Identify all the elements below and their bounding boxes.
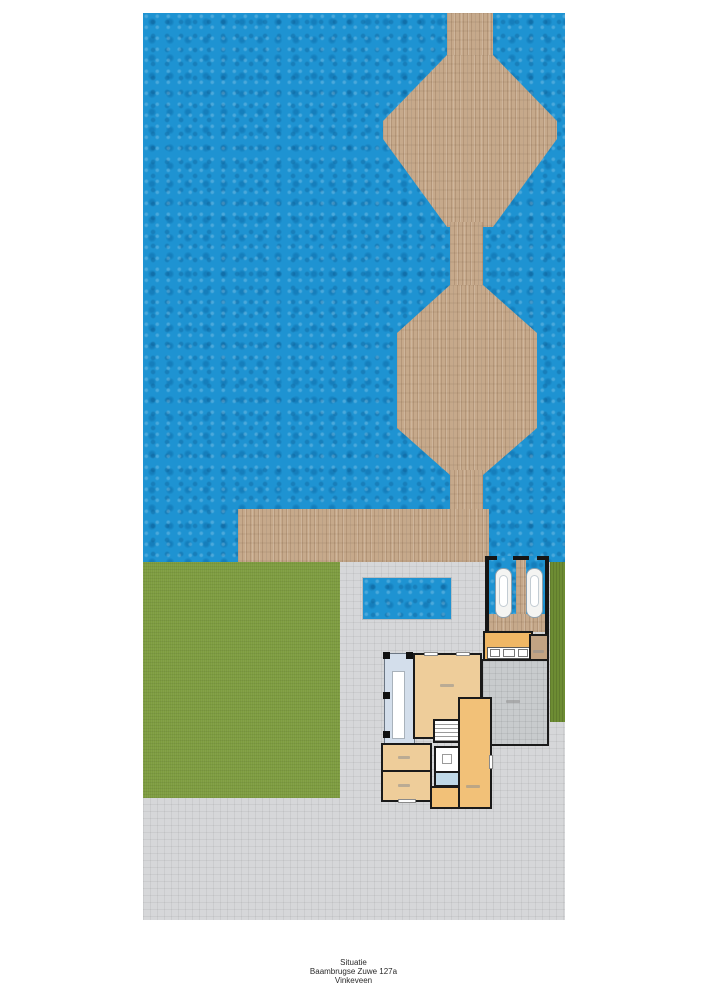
caption-line-3: Vinkeveen (0, 976, 707, 985)
kitchen-sink-3 (518, 649, 528, 657)
deck-walkway-top (447, 13, 493, 59)
kitchen-living-window (489, 755, 493, 769)
veranda-post-2 (406, 652, 413, 659)
site-plan-canvas: Situatie Baambrugse Zuwe 127a Vinkeveen (0, 0, 707, 1000)
room-label-smudge (440, 684, 454, 687)
veranda-post-3 (383, 692, 390, 699)
boat-left (495, 568, 512, 618)
caption-line-2: Baambrugse Zuwe 127a (0, 967, 707, 976)
bedroom-2-window (398, 799, 416, 803)
shore-deck-strip (238, 509, 489, 562)
kitchen-living-room (458, 697, 492, 809)
boat-right-deck (530, 575, 539, 607)
room-label-smudge (398, 784, 410, 787)
caption-line-1: Situatie (0, 958, 707, 967)
deck-walkway-upper (450, 222, 483, 290)
kitchen-living-room-extension (430, 786, 460, 809)
boathouse-wall-right (545, 556, 549, 642)
room-label-smudge (506, 700, 520, 703)
boathouse-wall-stub-1 (485, 556, 497, 560)
boat-right (526, 568, 543, 618)
caption: Situatie Baambrugse Zuwe 127a Vinkeveen (0, 958, 707, 985)
veranda-post-1 (383, 652, 390, 659)
room-label-smudge (466, 785, 480, 788)
living-room-window-2 (456, 652, 470, 656)
grass-area (143, 559, 340, 798)
boat-left-deck (499, 575, 508, 607)
staircase (433, 719, 460, 743)
boathouse-wall-stub-2 (513, 556, 529, 560)
living-room-window-1 (424, 652, 438, 656)
shower-tray (442, 754, 452, 764)
kitchen-sink-2 (503, 649, 515, 657)
swimming-pool (362, 577, 452, 620)
kitchen-sink-1 (490, 649, 500, 657)
deck-walkway-lower (450, 470, 483, 513)
hedge-strip (550, 559, 565, 722)
veranda-post-4 (383, 731, 390, 738)
veranda-table (392, 671, 405, 739)
room-label-smudge (398, 756, 410, 759)
bathroom (434, 771, 460, 787)
boathouse-wall-stub-3 (537, 556, 549, 560)
room-label-smudge (533, 650, 544, 653)
